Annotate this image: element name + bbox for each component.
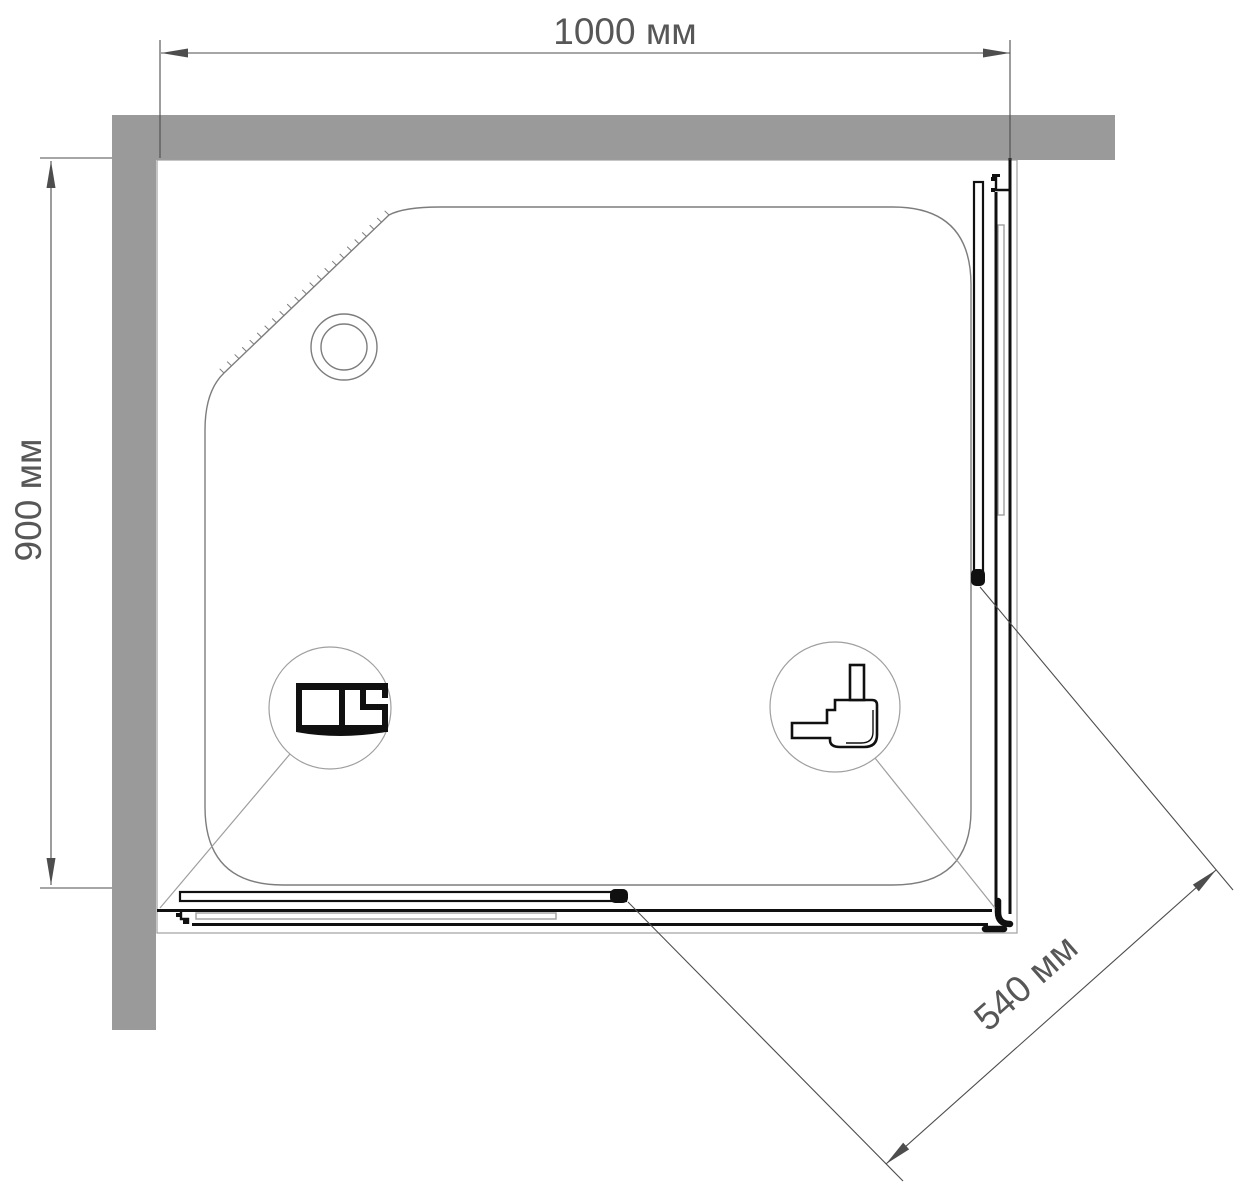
- wall-left: [112, 158, 156, 1030]
- bottom-bracket-nub-2: [183, 920, 187, 924]
- drain-icon: [311, 314, 377, 380]
- bottom-fixed-glass: [196, 913, 556, 919]
- dimension-depth: 900 мм: [8, 158, 112, 888]
- depth-arrow-top: [47, 161, 56, 188]
- enclosure-footprint-outline: [157, 160, 1017, 933]
- chamfer-hatching: [220, 211, 389, 373]
- shower-tray-outline: [205, 207, 971, 885]
- wall-top: [112, 115, 1115, 160]
- right-wall-bracket: [996, 177, 1010, 190]
- shower-enclosure-plan-drawing: 1000 мм 900 мм 540 мм: [0, 0, 1238, 1186]
- corner-profile-icon: [792, 665, 877, 747]
- wall-profile-icon: [296, 683, 388, 736]
- depth-dimension-label: 900 мм: [8, 439, 49, 562]
- width-arrow-left: [161, 49, 188, 58]
- right-bracket-nub-1: [991, 177, 995, 181]
- detail-wall-profile: [160, 647, 391, 908]
- door-extension-bottom: [628, 902, 903, 1181]
- bottom-door-assembly: [157, 889, 992, 925]
- right-fixed-glass: [998, 225, 1004, 515]
- bottom-bracket-nub-1: [176, 913, 180, 917]
- right-door-assembly: [971, 158, 1010, 929]
- door-dimension-line: [886, 870, 1216, 1164]
- width-arrow-right: [983, 49, 1010, 58]
- detail-corner-profile: [770, 642, 995, 908]
- door-dimension-label: 540 мм: [966, 927, 1085, 1039]
- depth-arrow-bottom: [47, 858, 56, 885]
- right-panel-end-cap: [971, 569, 985, 586]
- right-sliding-panel: [974, 182, 983, 578]
- width-dimension-label: 1000 мм: [553, 11, 696, 52]
- right-bracket-nub-2: [991, 188, 995, 192]
- dimension-door: 540 мм: [628, 587, 1233, 1181]
- door-extension-right: [980, 587, 1233, 890]
- corner-connector: [998, 901, 1010, 924]
- right-bracket-tick: [992, 174, 1000, 177]
- bottom-panel-end-cap: [610, 889, 628, 903]
- bottom-sliding-panel: [180, 892, 626, 901]
